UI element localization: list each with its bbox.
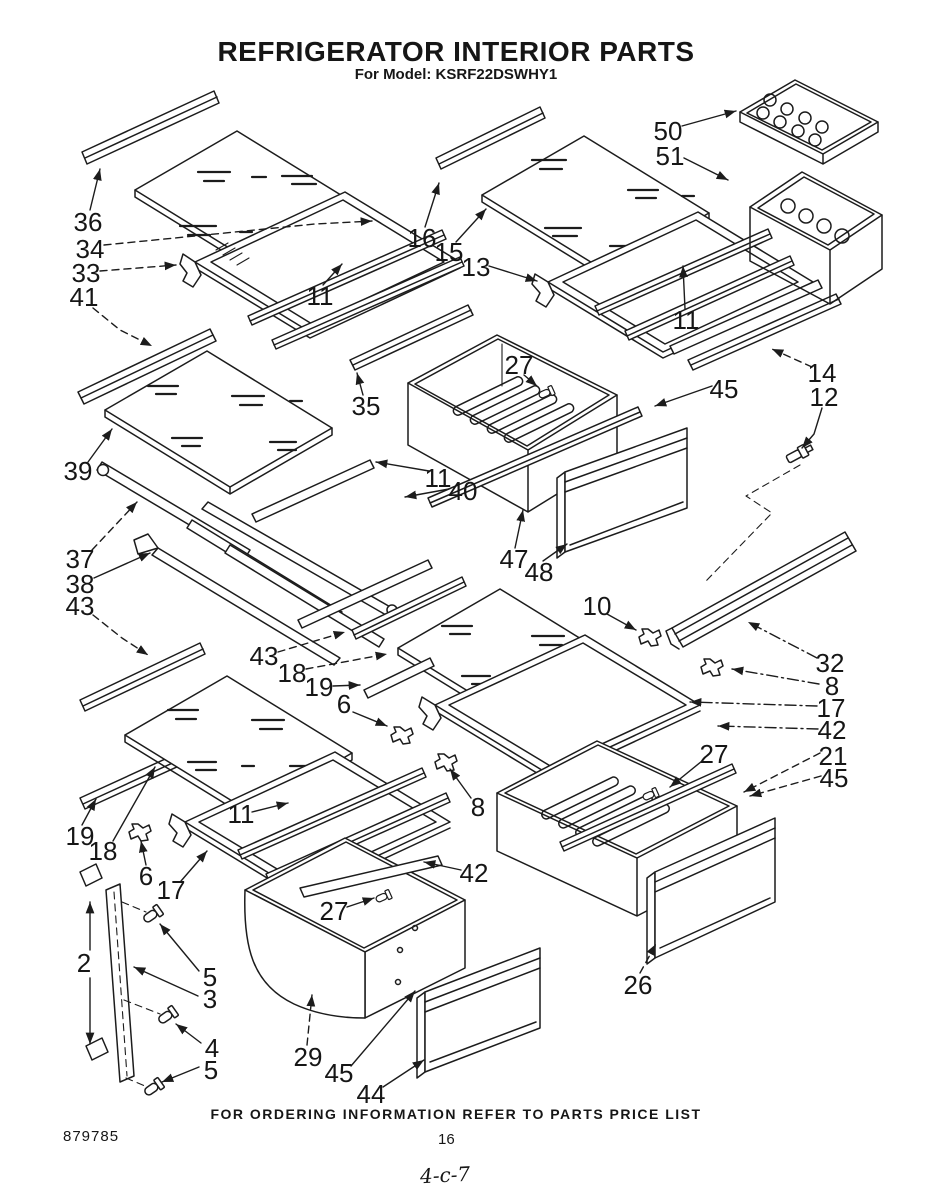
part-number-2: 2 — [77, 948, 91, 978]
leader-arrow-37 — [92, 502, 137, 550]
support-rail-32 — [666, 532, 856, 649]
part-number-44: 44 — [357, 1079, 386, 1109]
leader-arrow-47 — [515, 510, 523, 548]
part-number-43: 43 — [250, 641, 279, 671]
leader-arrow-11 — [376, 462, 429, 471]
part-number-45: 45 — [325, 1058, 354, 1088]
leader-arrow-17 — [690, 702, 817, 706]
part-number-51: 51 — [656, 141, 685, 171]
leader-arrow-14 — [772, 349, 812, 367]
part-number-27: 27 — [700, 739, 729, 769]
leader-arrow-33 — [100, 265, 176, 271]
shelf-trim-rail-16 — [436, 107, 545, 169]
part-number-36: 36 — [74, 207, 103, 237]
part-number-18: 18 — [278, 658, 307, 688]
part-number-43: 43 — [66, 591, 95, 621]
part-number-29: 29 — [294, 1042, 323, 1072]
part-number-45: 45 — [710, 374, 739, 404]
leader-arrow-21 — [744, 753, 820, 792]
part-number-15: 15 — [435, 237, 464, 267]
shelf-trim-rail-19-center — [364, 658, 434, 698]
part-number-3: 3 — [203, 984, 217, 1014]
shelf-stud-12 — [785, 442, 814, 465]
shelf-clip-6-center — [391, 727, 413, 744]
part-number-40: 40 — [449, 476, 478, 506]
part-number-13: 13 — [462, 252, 491, 282]
handwritten-mark: 4-c-7 — [419, 1162, 470, 1189]
part-number-6: 6 — [139, 861, 153, 891]
document-number: 879785 — [63, 1128, 119, 1145]
part-number-41: 41 — [70, 282, 99, 312]
part-number-42: 42 — [460, 858, 489, 888]
leader-arrow-38 — [94, 553, 150, 578]
ordering-note: FOR ORDERING INFORMATION REFER TO PARTS … — [0, 1106, 912, 1122]
part-number-11: 11 — [307, 281, 334, 311]
part-number-27: 27 — [320, 896, 349, 926]
part-number-6: 6 — [337, 689, 351, 719]
exploded-parts-diagram: 3634334116151311505111141245273539373843… — [0, 0, 942, 1200]
part-number-18: 18 — [89, 836, 118, 866]
leader-arrow-36 — [90, 169, 100, 210]
leader-arrow-16 — [425, 183, 439, 227]
part-number-48: 48 — [525, 557, 554, 587]
drawer-front-48 — [557, 428, 687, 558]
part-number-26: 26 — [624, 970, 653, 1000]
leader-arrow-6 — [353, 712, 387, 726]
part-number-8: 8 — [471, 792, 485, 822]
part-number-17: 17 — [157, 875, 186, 905]
parts-catalog-page: REFRIGERATOR INTERIOR PARTS For Model: K… — [0, 0, 942, 1200]
part-number-16: 16 — [408, 223, 437, 253]
leader-arrow-12 — [802, 408, 822, 448]
egg-tray-50 — [740, 80, 878, 164]
shelf-clip-8-center — [435, 754, 457, 771]
leader-arrow-45 — [655, 386, 712, 406]
part-number-19: 19 — [305, 672, 334, 702]
leader-arrow-41 — [93, 308, 152, 346]
leader-arrow-8 — [732, 669, 819, 684]
leader-arrow-32 — [748, 622, 817, 658]
page-number: 16 — [438, 1131, 455, 1148]
part-number-11: 11 — [673, 305, 700, 335]
leader-arrow-50 — [682, 111, 736, 126]
part-number-5: 5 — [204, 1055, 218, 1085]
leader-arrow-3 — [134, 967, 198, 996]
part-number-27: 27 — [505, 350, 534, 380]
leader-arrow-5 — [160, 924, 199, 971]
shelf-clip-10 — [639, 629, 661, 646]
leader-arrow-43 — [93, 615, 148, 655]
leader-arrow-13 — [489, 266, 537, 281]
part-number-45: 45 — [820, 763, 849, 793]
leader-arrow-45 — [750, 776, 821, 796]
leader-arrow-42 — [718, 726, 818, 729]
part-number-10: 10 — [583, 591, 612, 621]
leader-arrow-51 — [684, 158, 728, 180]
leader-arrow-5 — [162, 1067, 199, 1082]
part-number-11: 11 — [228, 799, 255, 829]
shelf-clip-6-left — [129, 824, 151, 841]
part-number-12: 12 — [810, 382, 839, 412]
leader-arrow-8 — [450, 769, 471, 798]
slide-out-frame-37-38 — [97, 460, 432, 665]
part-number-35: 35 — [352, 391, 381, 421]
shelf-clip-8-right — [701, 659, 723, 676]
alignment-dash-line — [706, 465, 800, 581]
leader-arrow-19 — [333, 685, 360, 686]
part-number-39: 39 — [64, 456, 93, 486]
leader-arrow-4 — [176, 1024, 201, 1043]
